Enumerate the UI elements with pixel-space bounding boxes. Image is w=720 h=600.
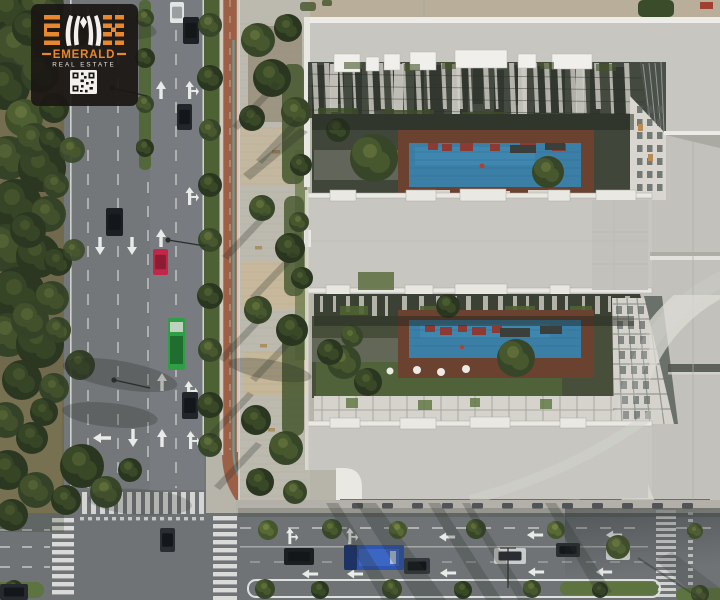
- svg-text:REAL ESTATE: REAL ESTATE: [52, 62, 116, 69]
- svg-text:EMERALD: EMERALD: [53, 49, 115, 61]
